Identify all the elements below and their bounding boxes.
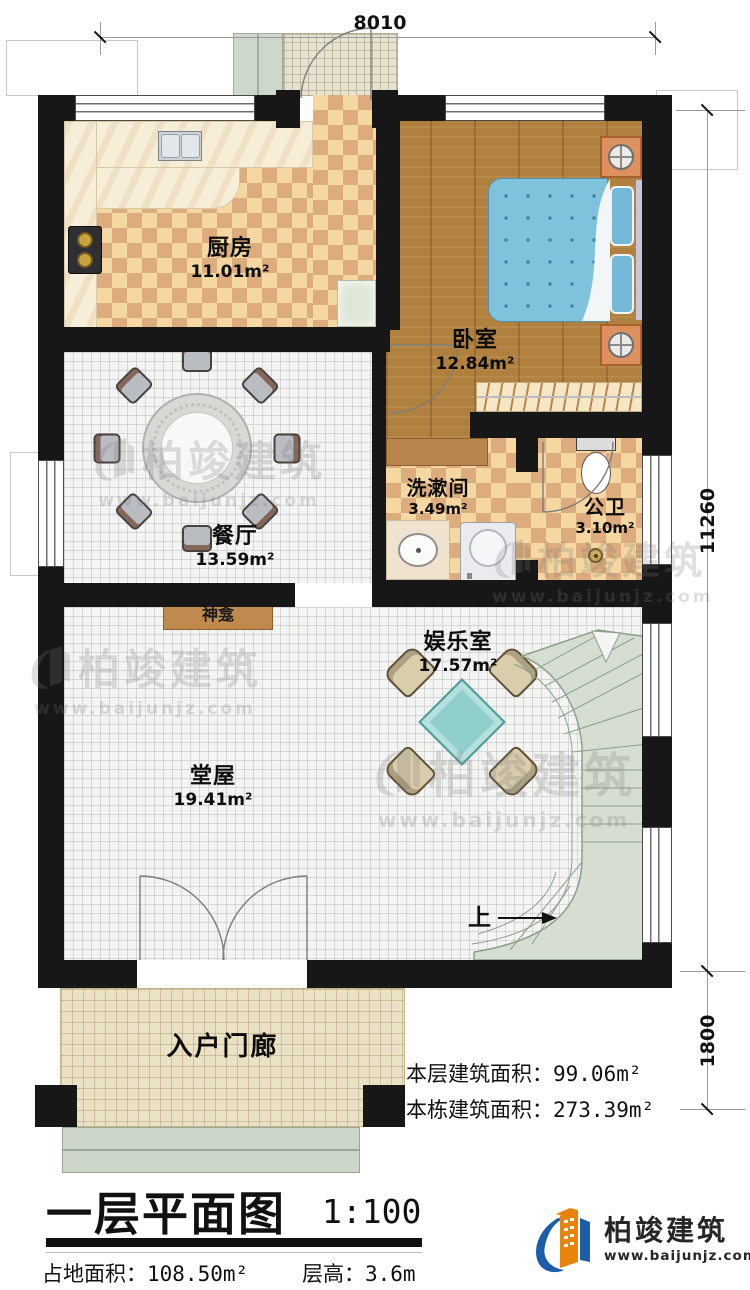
floorplan-canvas: 神龛 (0, 0, 750, 1290)
watermark-url: www.baijunjz.com (92, 491, 326, 511)
watermark-text: 柏竣建筑 (78, 636, 262, 697)
room-name: 洗漱间 (378, 477, 498, 501)
dim-right-porch-value: 1800 (697, 1001, 719, 1081)
note-floor-area-value: 99.06m² (553, 1062, 642, 1086)
porch-column (35, 1085, 77, 1127)
wall (38, 960, 137, 988)
title-underline (46, 1238, 422, 1247)
watermark-logo-icon (92, 436, 134, 482)
window-bedroom (445, 95, 605, 121)
note-floor-area-label: 本层建筑面积： (406, 1062, 553, 1086)
dim-ext (676, 110, 745, 111)
watermark-url: www.baijunjz.com (372, 808, 636, 832)
wall-wc-divider (516, 438, 538, 472)
porch-column (363, 1085, 405, 1127)
room-area: 11.01m² (165, 262, 295, 282)
stairs-up-arrow-icon (542, 912, 557, 924)
window-kitchen (75, 95, 255, 121)
wall (642, 737, 672, 827)
label-kitchen: 厨房 11.01m² (165, 236, 295, 282)
watermark-text: 柏竣建筑 (538, 530, 706, 585)
watermark: 柏竣建筑 www.baijunjz.com (372, 736, 636, 832)
room-name: 娱乐室 (388, 630, 528, 656)
room-area: 19.41m² (148, 790, 278, 810)
note-land-area: 占地面积：108.50m² (42, 1258, 248, 1288)
door-jamb (276, 90, 300, 128)
brand-url: www.baijunjz.com (604, 1248, 750, 1264)
drawing-scale: 1:100 (322, 1192, 421, 1231)
wall-dining-east (372, 352, 386, 580)
window-stair-upper (642, 623, 672, 737)
note-building-area-label: 本栋建筑面积： (406, 1098, 553, 1122)
window-stair-lower (642, 827, 672, 943)
label-porch: 入户门廊 (130, 1032, 315, 1063)
dim-line-right (707, 110, 708, 1110)
window-dining (38, 460, 64, 567)
land-area-label: 占地面积： (42, 1262, 147, 1286)
wall (307, 960, 672, 988)
dim-line-top (100, 37, 656, 38)
room-name: 入户门廊 (130, 1032, 315, 1063)
brand-logo: 柏竣建筑 www.baijunjz.com (532, 1206, 750, 1274)
stairs-up-label: 上 (468, 898, 491, 932)
room-area: 13.59m² (170, 550, 300, 570)
page-title: 一层平面图 (46, 1178, 286, 1244)
note-building-area-value: 273.39m² (553, 1098, 654, 1122)
watermark-url: www.baijunjz.com (28, 699, 262, 719)
room-area: 17.57m² (388, 656, 528, 676)
dim-ext (680, 1109, 745, 1110)
note-floor-height: 层高：3.6m (302, 1258, 416, 1288)
wall-dining-south (38, 583, 295, 607)
watermark-text: 柏竣建筑 (428, 736, 636, 806)
dim-top-value: 8010 (310, 12, 450, 34)
wall (38, 95, 64, 460)
watermark-text: 柏竣建筑 (142, 428, 326, 489)
watermark: 柏竣建筑 www.baijunjz.com (492, 530, 714, 607)
room-name: 餐厅 (170, 524, 300, 550)
note-floor-area: 本层建筑面积：99.06m² (406, 1058, 642, 1088)
label-entertainment: 娱乐室 17.57m² (388, 630, 528, 676)
label-dining: 餐厅 13.59m² (170, 524, 300, 570)
label-bedroom: 卧室 12.84m² (400, 328, 550, 374)
wall (642, 95, 672, 455)
watermark-logo-icon (28, 644, 70, 690)
watermark-logo-icon (372, 745, 420, 797)
watermark-url: www.baijunjz.com (492, 587, 714, 607)
room-name: 卧室 (400, 328, 550, 354)
land-area-value: 108.50m² (147, 1262, 248, 1286)
room-area: 12.84m² (400, 354, 550, 374)
brand-name: 柏竣建筑 (604, 1217, 750, 1245)
title-underline-thin (46, 1252, 422, 1253)
wall (38, 567, 64, 960)
watermark-logo-icon (492, 537, 530, 579)
room-area: 3.49m² (378, 501, 498, 519)
wall-corridor-east (376, 95, 400, 330)
floor-height-label: 层高： (302, 1262, 365, 1286)
stairs-up-arrow-line (498, 917, 542, 919)
room-name: 公卫 (550, 496, 660, 520)
note-building-area: 本栋建筑面积：273.39m² (406, 1094, 654, 1124)
brand-logo-icon (532, 1206, 594, 1274)
wall-kitchen-south (38, 327, 390, 352)
label-washroom: 洗漱间 3.49m² (378, 477, 498, 518)
room-name: 堂屋 (148, 764, 278, 790)
label-hall: 堂屋 19.41m² (148, 764, 278, 810)
room-name: 厨房 (165, 236, 295, 262)
watermark: 柏竣建筑 www.baijunjz.com (28, 636, 262, 719)
floor-height-value: 3.6m (365, 1262, 416, 1286)
watermark: 柏竣建筑 www.baijunjz.com (92, 428, 326, 511)
dim-ext (680, 971, 745, 972)
wall-bedroom-south (470, 412, 672, 438)
